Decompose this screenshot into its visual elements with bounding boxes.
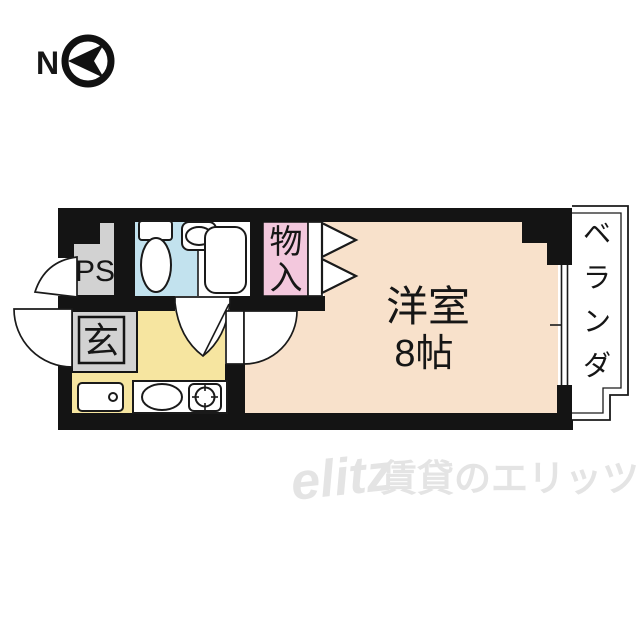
ps-door-arc (35, 257, 77, 297)
watermark-logo: elitz (288, 444, 395, 512)
compass-arrow-icon (65, 38, 111, 84)
stove-icon (189, 384, 221, 411)
closet-label-char1: 物 (270, 223, 303, 260)
washer-space-icon (78, 383, 123, 411)
watermark-text: 賃貸のエリッツ (379, 458, 639, 499)
svg-text:ダ: ダ (583, 350, 611, 381)
closet-door-leaf (308, 222, 322, 296)
kitchen-sink-icon (142, 384, 182, 410)
main-room-label: 洋室 (386, 283, 470, 330)
bathtub-icon (205, 227, 246, 293)
main-room-size-label: 8帖 (394, 333, 453, 375)
toilet-icon (139, 221, 172, 292)
floor-plan: ベ ラ ン ダ (0, 0, 640, 640)
svg-text:ン: ン (583, 306, 611, 337)
entrance-label: 玄 (83, 320, 119, 361)
svg-text:ラ: ラ (583, 262, 611, 293)
entrance-door-arc (14, 309, 72, 367)
balcony: ベ ラ ン ダ (572, 206, 628, 420)
watermark: elitz 賃貸のエリッツ (288, 444, 639, 512)
north-label: N (36, 45, 59, 81)
svg-text:ベ: ベ (583, 218, 611, 249)
kitchen-counter (133, 381, 227, 413)
north-indicator: N (36, 38, 111, 84)
pipe-space-label: PS (75, 255, 115, 288)
closet-label-char2: 入 (270, 259, 303, 296)
room-door-leaf (226, 311, 244, 364)
floor-plan-page: ベ ラ ン ダ (0, 0, 640, 640)
